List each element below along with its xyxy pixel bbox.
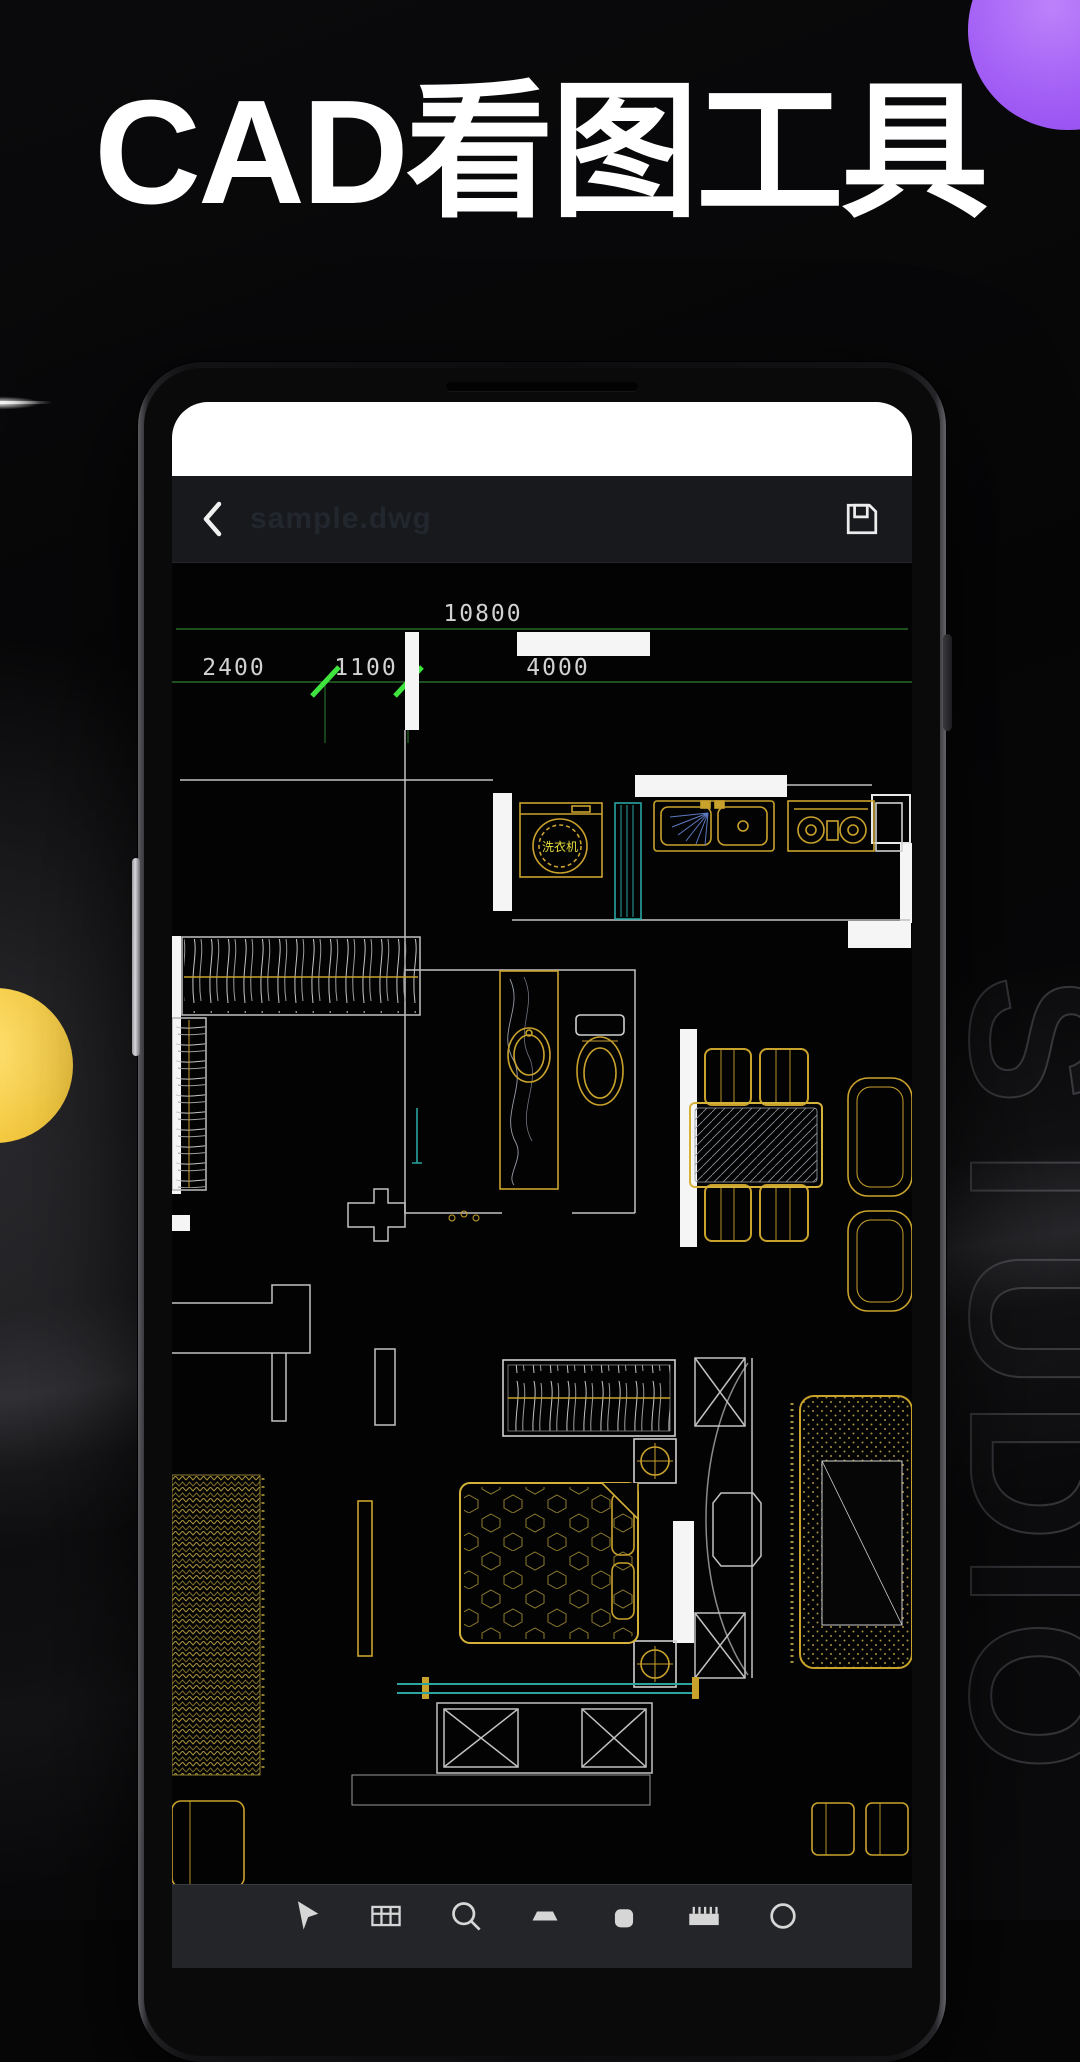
magnifier-icon <box>449 1899 483 1933</box>
toolbar-icon-layers[interactable] <box>369 1899 403 1933</box>
floppy-disk-icon <box>844 501 880 537</box>
dim-total: 10800 <box>443 601 522 627</box>
phone-screen: sample.dwg <box>172 402 912 1968</box>
dim-seg-3: 4000 <box>526 655 589 681</box>
chevron-left-icon <box>202 500 224 538</box>
volume-button <box>132 858 140 1056</box>
file-name: sample.dwg <box>250 502 432 536</box>
power-button <box>943 634 952 731</box>
dim-seg-1: 2400 <box>202 655 265 681</box>
cad-canvas[interactable]: 10800 2400 1100 4000 <box>172 563 912 1884</box>
washing-machine-label: 洗衣机 <box>542 839 578 854</box>
toolbar-icon-fill[interactable] <box>607 1899 641 1933</box>
speaker-slot <box>446 382 638 391</box>
toolbar-icon-circle[interactable] <box>766 1899 800 1933</box>
dim-seg-2: 1100 <box>334 655 397 681</box>
save-button[interactable] <box>842 499 882 539</box>
toolbar-icon-zoom[interactable] <box>449 1899 483 1933</box>
furniture-layer <box>172 801 912 1884</box>
select-icon <box>290 1899 324 1933</box>
dimension-layer: 10800 2400 1100 4000 <box>172 601 912 743</box>
measure-icon <box>528 1899 562 1933</box>
viewer-app-bar: sample.dwg <box>172 476 912 563</box>
cad-drawing: 10800 2400 1100 4000 <box>172 563 912 1884</box>
phone-bezel: sample.dwg <box>144 368 940 2056</box>
toolbar-icon-measure[interactable] <box>528 1899 562 1933</box>
fill-icon <box>607 1899 641 1933</box>
back-button[interactable] <box>202 499 228 539</box>
status-bar <box>172 402 912 476</box>
toolbar-icon-ruler[interactable] <box>687 1899 721 1933</box>
lens-flare <box>0 392 60 414</box>
toolbar-icon-select[interactable] <box>290 1899 324 1933</box>
circle-icon <box>766 1899 800 1933</box>
layers-icon <box>369 1899 403 1933</box>
poster-page: { "poster": { "title": "CAD看图工具", "water… <box>0 0 1080 1920</box>
bottom-toolbar <box>172 1884 912 1968</box>
phone-mockup: sample.dwg <box>138 362 946 2062</box>
ruler-icon <box>687 1899 721 1933</box>
sink-spray <box>670 813 708 845</box>
page-title: CAD看图工具 <box>0 72 1080 235</box>
